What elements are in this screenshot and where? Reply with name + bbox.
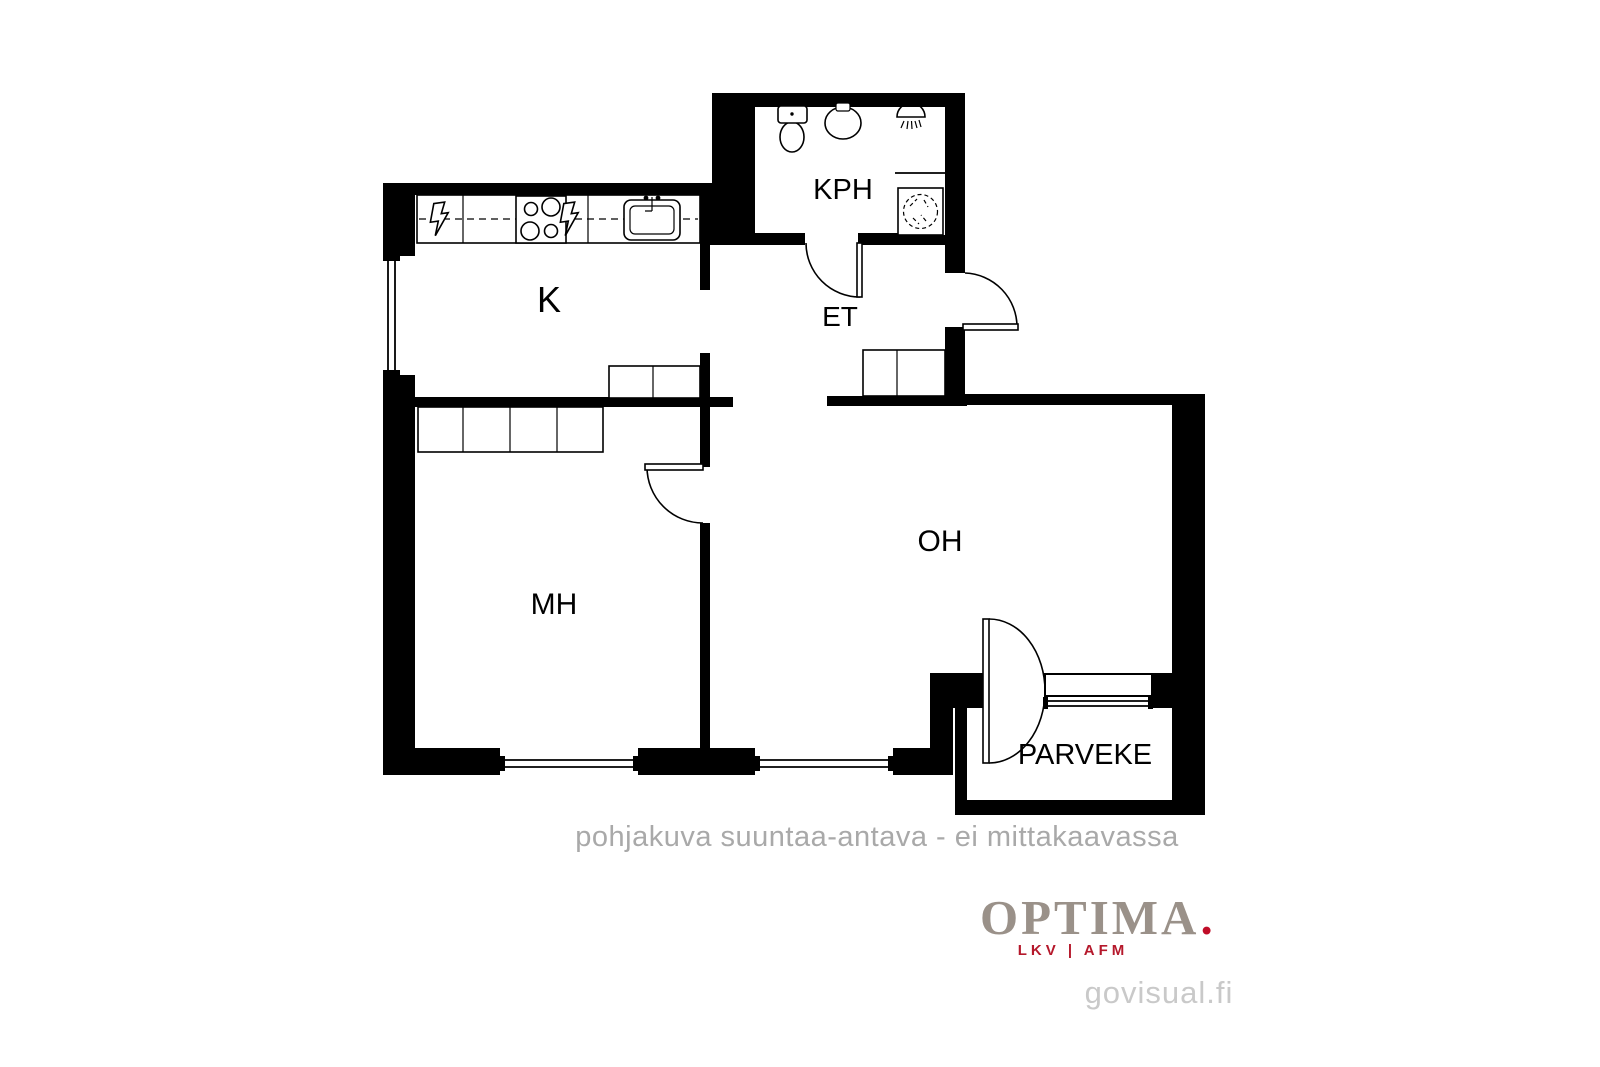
window-frame-tick	[383, 370, 400, 375]
door-leaf	[963, 324, 1018, 330]
window-kitchen	[383, 256, 417, 375]
door-leaf	[857, 243, 862, 297]
door-swing-arc	[965, 273, 1017, 327]
wall-segment	[1152, 673, 1205, 708]
sink-faucet	[836, 103, 850, 111]
kitchen-cabinet	[609, 366, 700, 398]
window-living-room	[755, 748, 893, 775]
door-bedroom	[645, 464, 703, 523]
kitchen-sink-icon	[624, 196, 680, 240]
logo-tagline: LKV | AFM	[1018, 942, 1128, 959]
kitchen-counter	[417, 195, 700, 243]
wall-segment	[712, 93, 755, 187]
logo-text: OPTIMA	[980, 890, 1199, 945]
window-opening	[500, 748, 638, 775]
optima-logo: OPTIMA. LKV | AFM	[980, 890, 1216, 959]
cabinet-outline	[609, 366, 700, 398]
room-label-bathroom: KPH	[813, 174, 873, 206]
window-balcony	[1043, 673, 1153, 709]
door-swing-arc	[647, 467, 703, 523]
sink-basin	[825, 107, 861, 139]
wall-segment	[957, 394, 1205, 405]
disclaimer-text: pohjakuva suuntaa-antava - ei mittakaava…	[575, 821, 1179, 853]
stove-burner	[525, 203, 538, 216]
wall-segment	[827, 396, 967, 406]
wall-segment	[700, 245, 710, 290]
wall-segment	[383, 373, 415, 775]
wall-segment	[858, 233, 898, 245]
window-box	[1045, 674, 1152, 696]
window-frame-tick	[633, 756, 638, 771]
wall-segment	[700, 183, 755, 245]
toilet-button	[790, 112, 793, 115]
wall-segment	[700, 523, 710, 775]
logo-wordmark: OPTIMA.	[980, 890, 1216, 945]
wall-segment	[1172, 394, 1205, 815]
wall-segment	[945, 93, 965, 273]
sink-tap-dot	[644, 196, 649, 201]
logo-dot: .	[1200, 890, 1215, 945]
floorplan-page: K KPH ET MH OH PARVEKE pohjakuva suuntaa…	[0, 0, 1600, 1067]
bedroom-closet	[418, 407, 603, 452]
window-frame-tick	[755, 756, 760, 771]
toilet-icon	[778, 106, 807, 152]
window-opening	[755, 748, 893, 775]
window-frame-tick	[888, 756, 893, 771]
entry-closet	[863, 350, 945, 396]
floor-plan: K KPH ET MH OH PARVEKE pohjakuva suuntaa…	[0, 0, 1600, 1067]
shower-spray	[901, 120, 921, 129]
wall-segment	[930, 673, 953, 775]
room-label-balcony: PARVEKE	[1018, 739, 1152, 771]
wall-segment	[898, 235, 965, 245]
window-frame-tick	[383, 256, 400, 261]
wall-segment	[955, 707, 967, 815]
washing-machine-icon	[895, 173, 945, 235]
door-swing-arc	[806, 243, 860, 297]
stove-burner	[545, 225, 558, 238]
door-bathroom	[806, 243, 862, 297]
closet-outline	[863, 350, 945, 396]
window-bedroom	[500, 748, 638, 775]
wall-segment	[755, 233, 805, 245]
door-entrance	[963, 273, 1018, 330]
room-label-kitchen: K	[537, 279, 561, 320]
window-frame-tick	[1148, 697, 1153, 709]
room-label-bedroom: MH	[531, 588, 578, 621]
stove-burner	[542, 198, 560, 216]
wall-segment	[955, 800, 1205, 815]
sink-tap-dot	[656, 196, 661, 201]
watermark-text: govisual.fi	[1085, 975, 1234, 1010]
wall-segment	[383, 183, 712, 195]
window-frame-tick	[500, 756, 505, 771]
toilet-bowl	[780, 122, 804, 152]
wall-segment	[700, 353, 710, 467]
room-label-living-room: OH	[918, 525, 963, 558]
room-label-entry: ET	[822, 301, 858, 332]
door-leaf	[645, 464, 703, 470]
wall-segment	[383, 183, 415, 258]
stove-burner	[521, 222, 539, 240]
stove-icon	[516, 196, 566, 243]
door-leaf	[983, 619, 989, 763]
